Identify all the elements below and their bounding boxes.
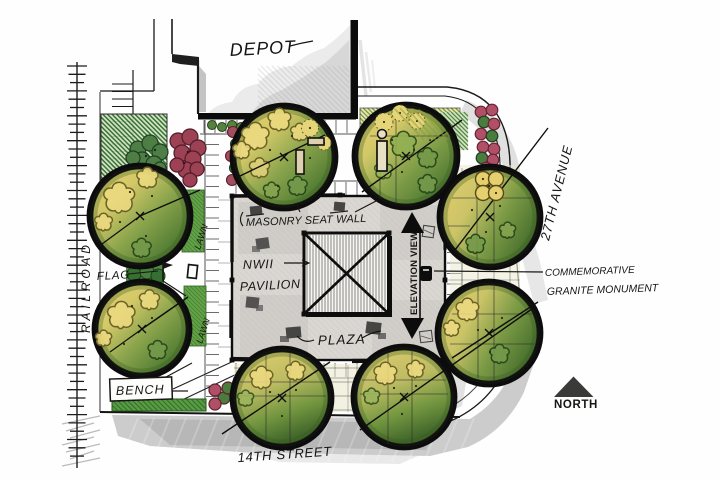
svg-text:NWII: NWII bbox=[243, 257, 274, 272]
svg-text:BENCH: BENCH bbox=[116, 382, 165, 398]
svg-text:PLAZA: PLAZA bbox=[318, 331, 366, 348]
svg-text:RAILROAD: RAILROAD bbox=[79, 241, 93, 333]
svg-text:ELEVATION VIEW: ELEVATION VIEW bbox=[409, 231, 420, 315]
svg-text:NORTH: NORTH bbox=[554, 399, 598, 411]
svg-text:FLAG: FLAG bbox=[97, 269, 131, 283]
svg-text:DEPOT: DEPOT bbox=[229, 37, 297, 60]
